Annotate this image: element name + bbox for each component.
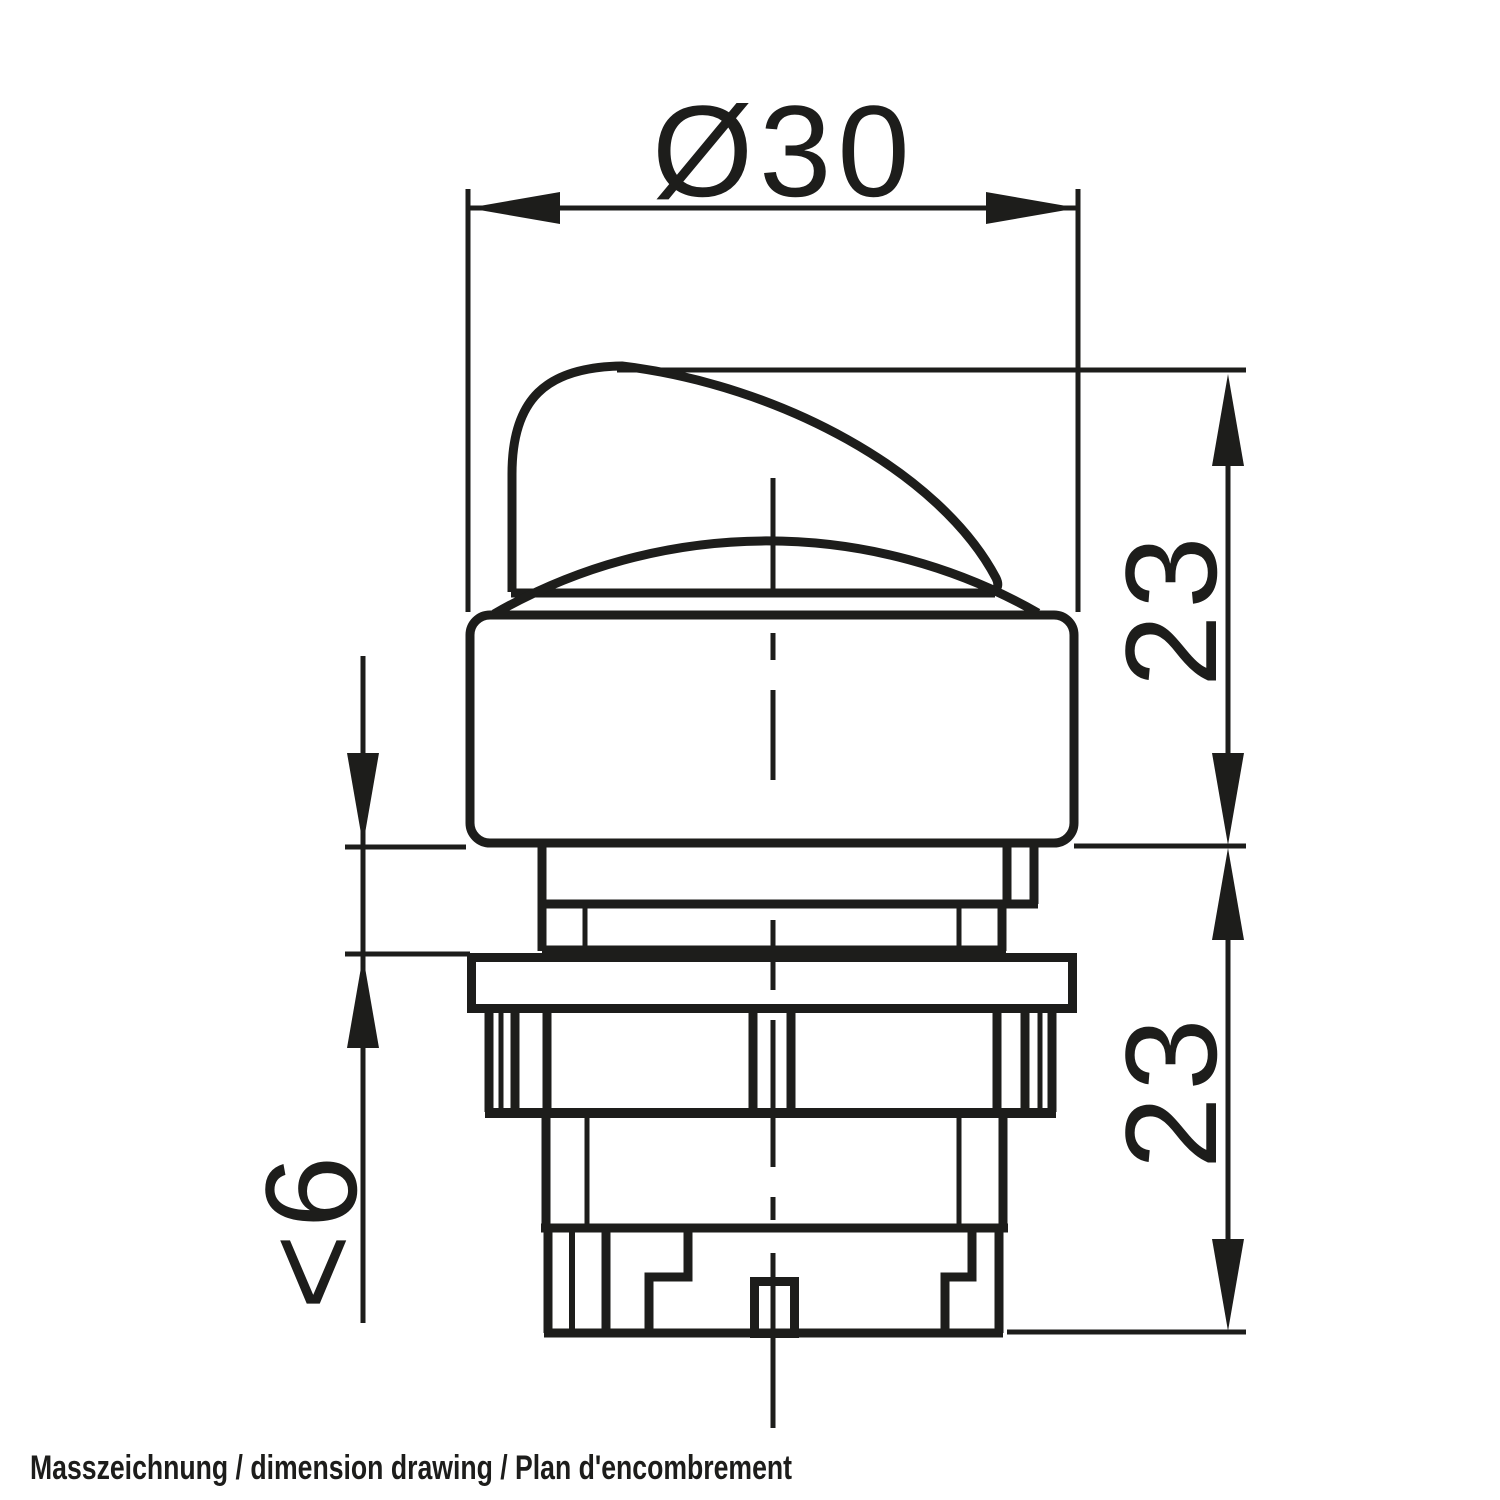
svg-text:<6: <6 (238, 1150, 384, 1310)
svg-text:23: 23 (1098, 1012, 1244, 1169)
svg-text:Ø30: Ø30 (652, 78, 916, 224)
svg-text:Masszeichnung / dimension draw: Masszeichnung / dimension drawing / Plan… (30, 1449, 792, 1487)
svg-text:23: 23 (1098, 530, 1244, 687)
